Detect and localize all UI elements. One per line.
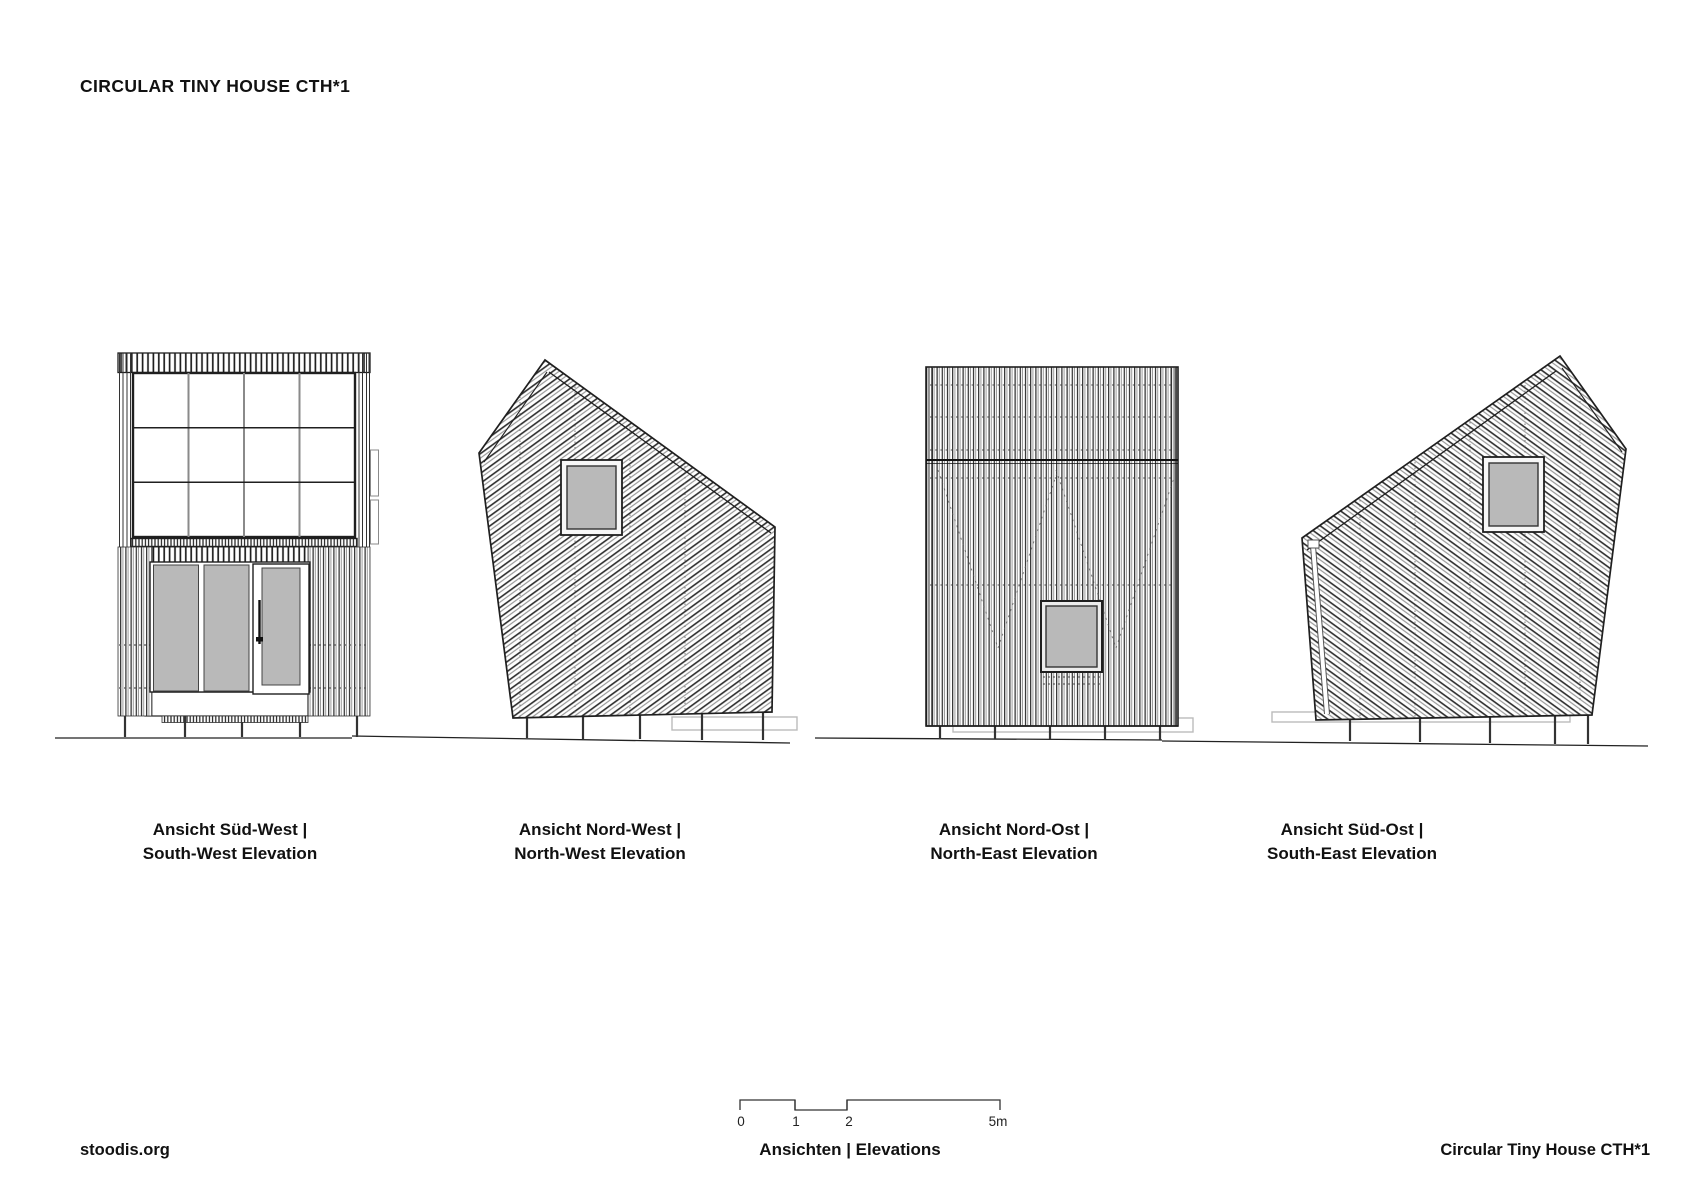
label-north-east-de: Ansicht Nord-Ost |	[930, 818, 1097, 842]
label-north-east: Ansicht Nord-Ost | North-East Elevation	[930, 818, 1097, 866]
label-south-east: Ansicht Süd-Ost | South-East Elevation	[1267, 818, 1437, 866]
elevations-drawing	[0, 0, 1697, 1200]
sheet-title: CIRCULAR TINY HOUSE CTH*1	[80, 76, 350, 97]
elevation-south-east	[1272, 356, 1626, 744]
elevation-north-west	[479, 360, 797, 740]
scale-tick-5m: 5m	[989, 1114, 1008, 1129]
scale-tick-0: 0	[737, 1114, 745, 1129]
window-south-east	[1483, 457, 1544, 532]
label-north-west-en: North-West Elevation	[514, 842, 686, 866]
drawing-sheet: { "title": "CIRCULAR TINY HOUSE CTH*1", …	[0, 0, 1697, 1200]
footer-brand: stoodis.org	[80, 1141, 170, 1160]
label-north-west-de: Ansicht Nord-West |	[514, 818, 686, 842]
footer-caption: Ansichten | Elevations	[759, 1140, 940, 1160]
label-south-east-de: Ansicht Süd-Ost |	[1267, 818, 1437, 842]
glazed-wall	[133, 373, 355, 537]
label-south-west-en: South-West Elevation	[143, 842, 317, 866]
footer-project: Circular Tiny House CTH*1	[1440, 1141, 1650, 1160]
label-north-east-en: North-East Elevation	[930, 842, 1097, 866]
label-south-west: Ansicht Süd-West | South-West Elevation	[143, 818, 317, 866]
elevation-south-west	[118, 353, 379, 737]
label-south-west-de: Ansicht Süd-West |	[143, 818, 317, 842]
label-south-east-en: South-East Elevation	[1267, 842, 1437, 866]
ground-line	[55, 736, 1648, 746]
elevation-north-east	[926, 367, 1193, 740]
downpipe	[371, 450, 379, 544]
scale-tick-1: 1	[792, 1114, 800, 1129]
scale-bar	[740, 1100, 1000, 1110]
window-north-east	[1041, 601, 1102, 684]
scale-tick-2: 2	[845, 1114, 853, 1129]
label-north-west: Ansicht Nord-West | North-West Elevation	[514, 818, 686, 866]
entrance-door	[150, 562, 310, 694]
window-north-west	[561, 460, 622, 535]
